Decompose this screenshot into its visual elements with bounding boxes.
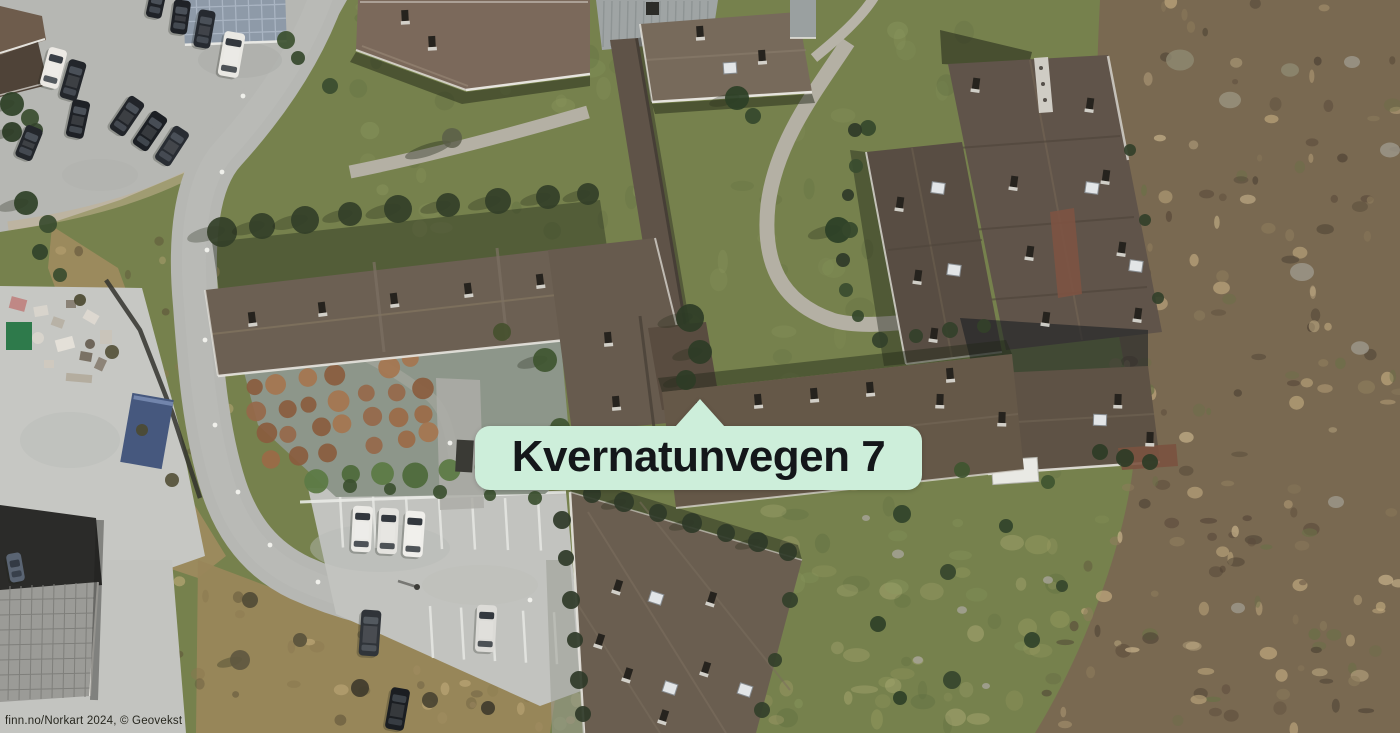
bare-tree: [442, 128, 462, 148]
aerial-imagery[interactable]: [0, 0, 1400, 733]
address-marker-pointer: [675, 399, 725, 427]
address-marker-text: Kvernatunvegen 7: [512, 435, 885, 482]
yard-item: [44, 360, 54, 368]
asphalt-patch: [422, 565, 538, 605]
building-bottom-left: [0, 505, 102, 702]
car: [356, 609, 381, 658]
car: [349, 505, 373, 554]
lamp-post: [414, 584, 420, 590]
green-container: [6, 322, 32, 350]
map-viewport[interactable]: Kvernatunvegen 7 finn.no/Norkart 2024, ©…: [0, 0, 1400, 733]
concrete-patch: [20, 412, 120, 468]
yard-item: [32, 332, 44, 344]
yard-item: [100, 330, 112, 344]
map-attribution: finn.no/Norkart 2024, © Geovekst: [5, 715, 182, 727]
asphalt-patch: [62, 159, 138, 191]
address-marker: Kvernatunvegen 7: [475, 426, 922, 490]
yard-item: [85, 339, 95, 349]
car: [400, 510, 425, 559]
waste-shed: [455, 440, 474, 473]
car: [375, 507, 399, 556]
car: [473, 604, 498, 654]
